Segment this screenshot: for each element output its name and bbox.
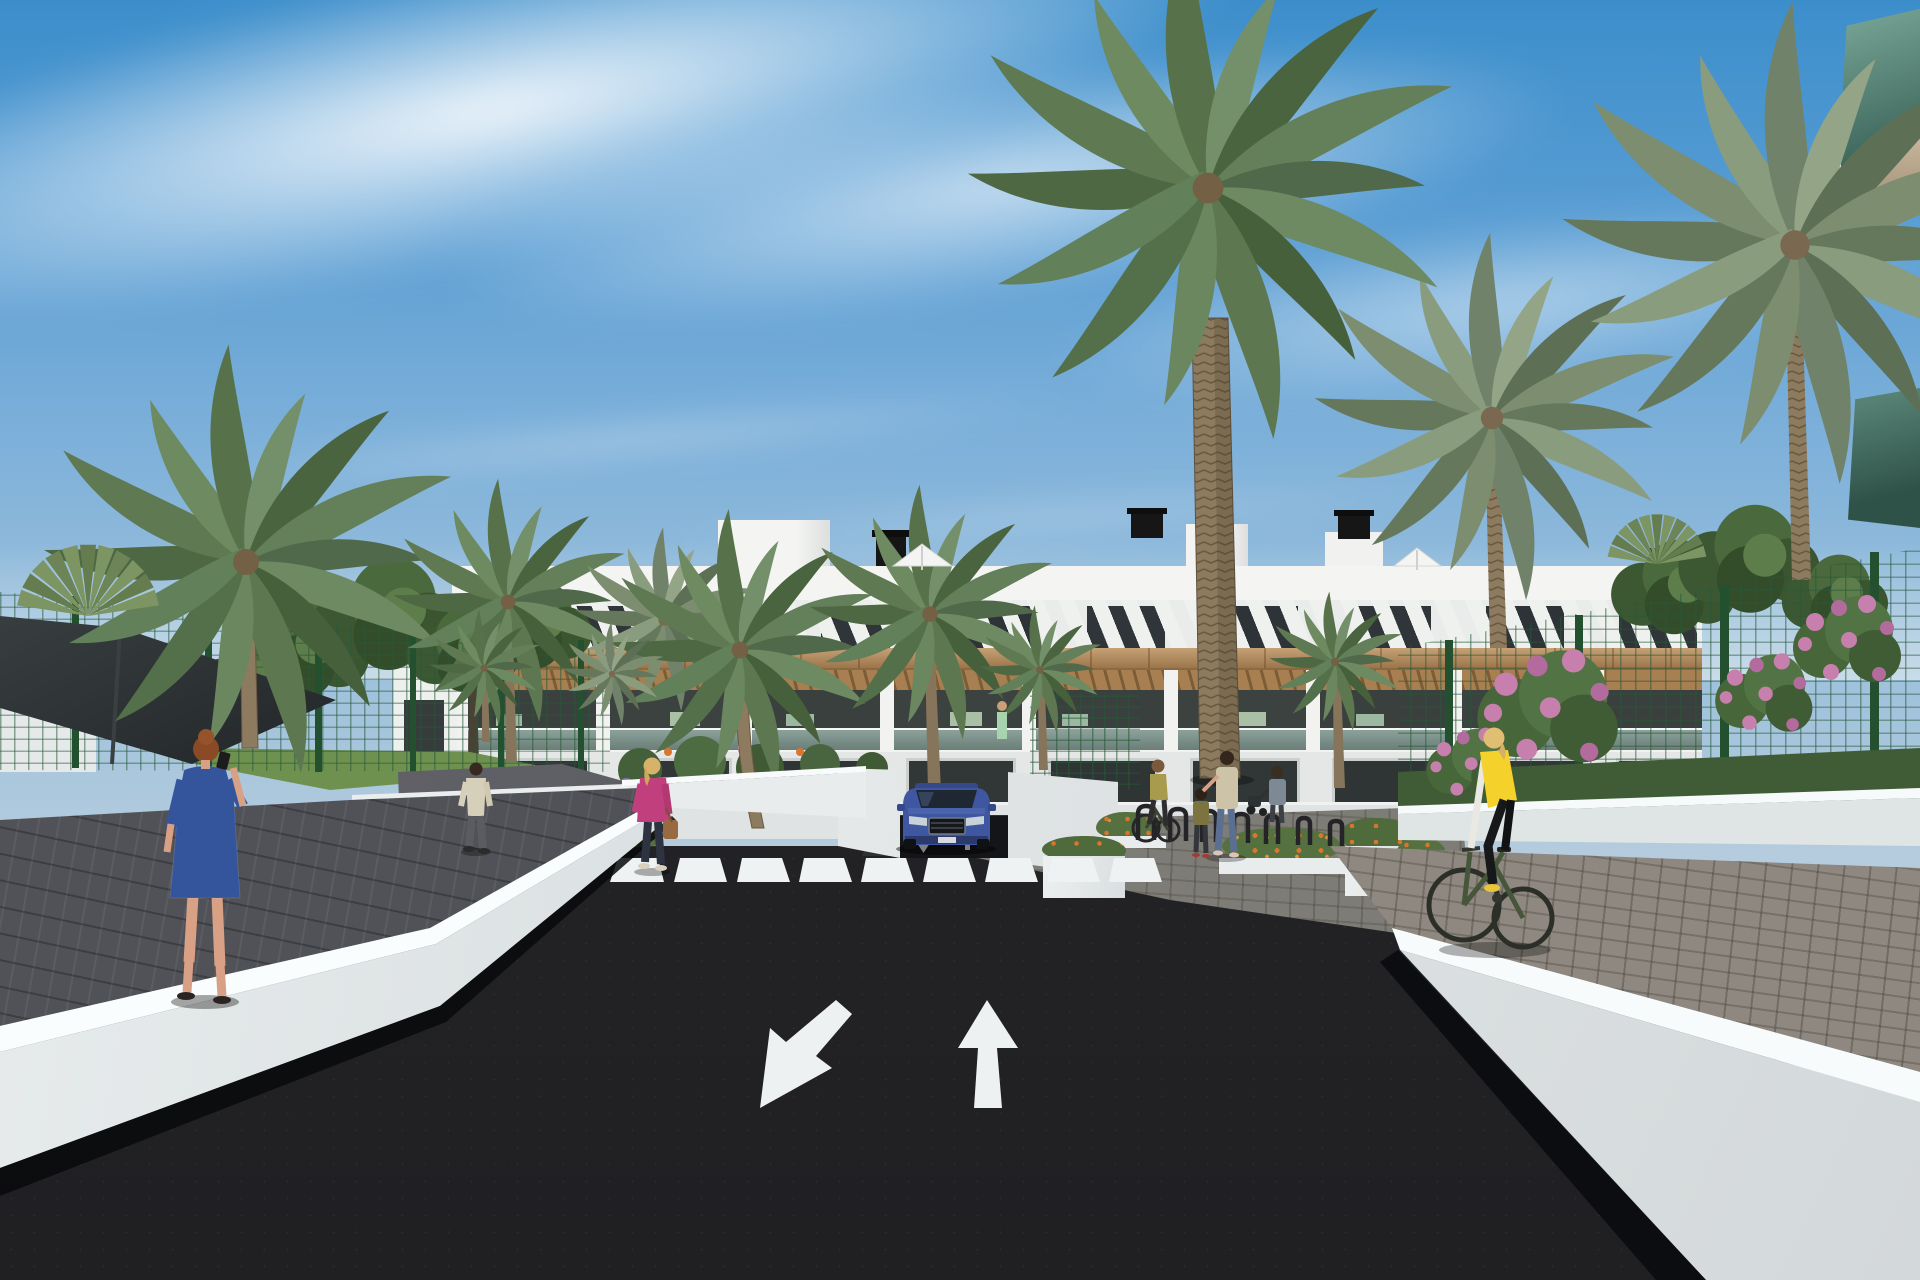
woman-blue-dress xyxy=(167,729,243,1009)
actors xyxy=(0,0,1920,1280)
cyclist-yellow-vest xyxy=(1429,728,1552,959)
giant-palm xyxy=(965,0,1466,786)
balcony-resident xyxy=(997,701,1007,739)
person-stroller xyxy=(1247,766,1287,823)
man-garden-path xyxy=(461,763,491,857)
rendering-scene xyxy=(0,0,1920,1280)
suv-car xyxy=(896,783,996,855)
woman-pink-jacket xyxy=(634,758,678,877)
